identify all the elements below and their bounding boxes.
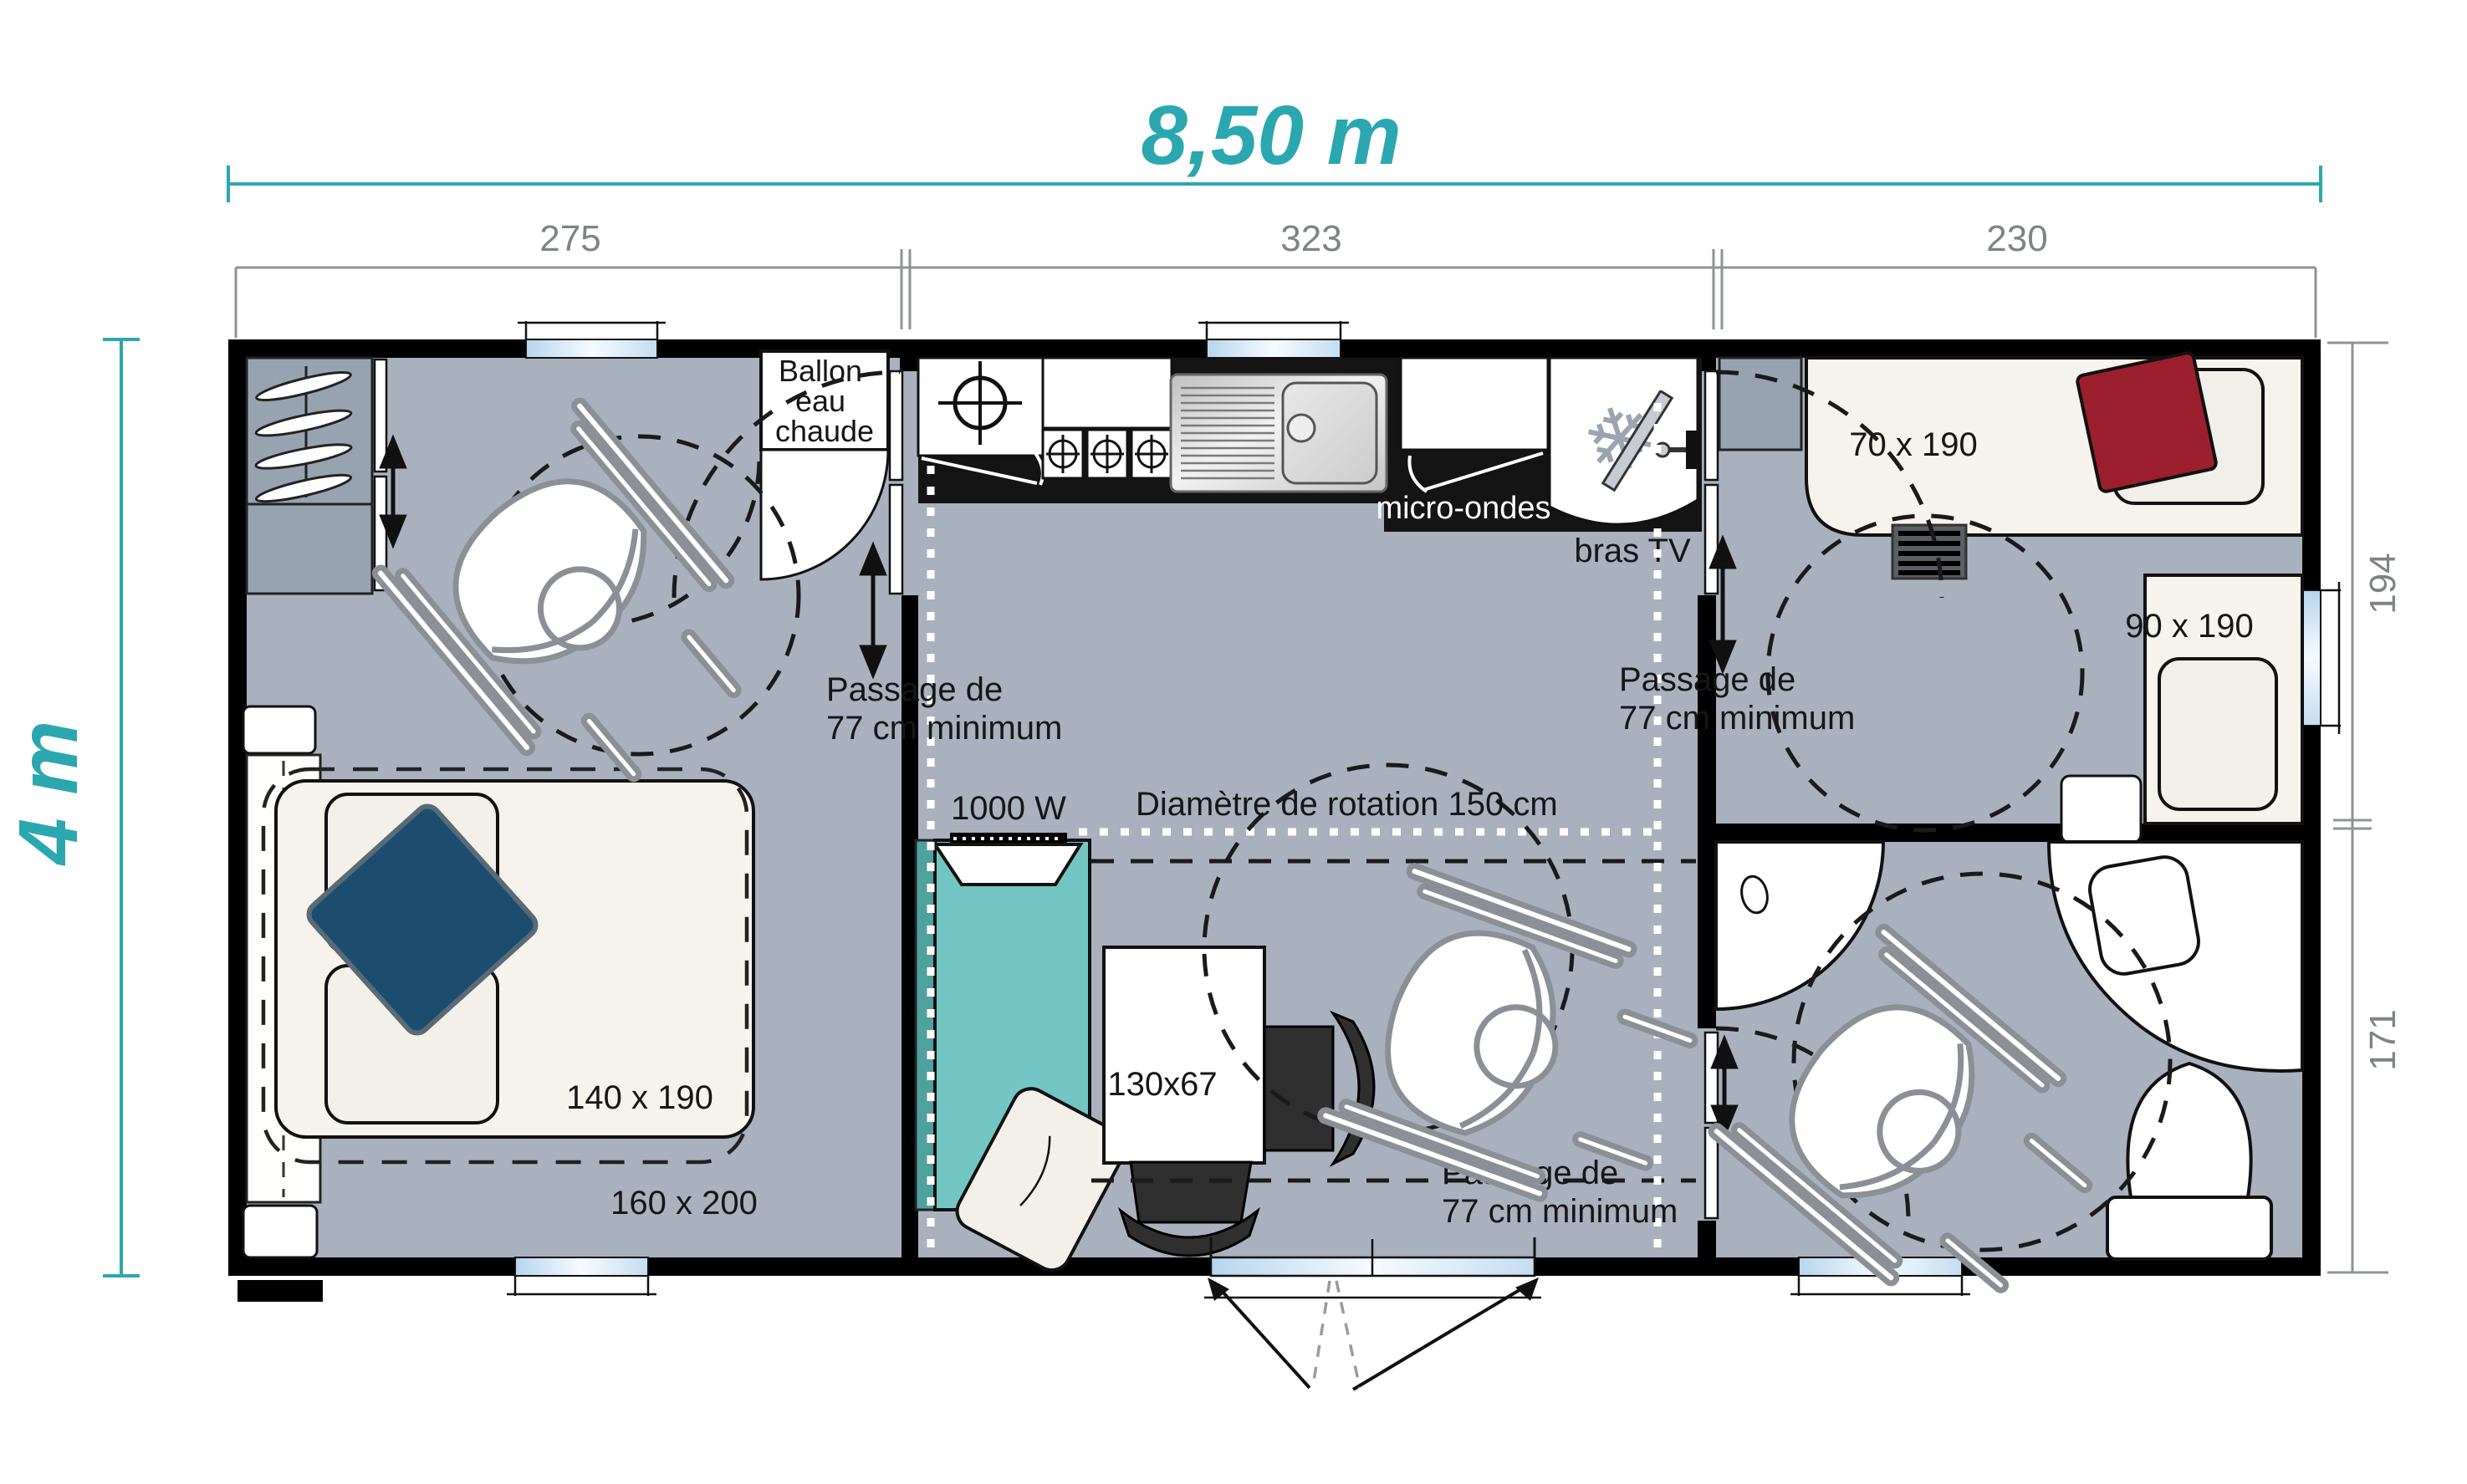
- nightstand: [2061, 776, 2141, 843]
- window-top-left: [526, 339, 657, 358]
- sliding-door-left-bedroom: [890, 371, 902, 480]
- dimension-right-segments: [2327, 343, 2388, 1272]
- segment-194-label: 194: [2362, 553, 2403, 614]
- segment-171-label: 171: [2362, 1009, 2403, 1070]
- dimension-height: [103, 339, 140, 1276]
- sliding-door-right-bedroom: [1705, 371, 1718, 480]
- pillow: [2159, 659, 2276, 809]
- segment-275-label: 275: [539, 218, 600, 259]
- bed-160-label: 160 x 200: [610, 1185, 758, 1221]
- bed-140-label: 140 x 190: [566, 1079, 713, 1116]
- heater-1000w-icon: [935, 833, 1080, 885]
- entry-step: [238, 1280, 323, 1302]
- bed-90-label: 90 x 190: [2125, 608, 2253, 645]
- height-dimension-label: 4 m: [2, 721, 95, 866]
- window-right-wall: [2302, 590, 2321, 726]
- floor-plan-page: 8,50 m 275 323 230 4 m 194 171: [0, 0, 2467, 1484]
- wardrobe-left: [247, 358, 386, 594]
- window-kitchen: [1207, 339, 1341, 358]
- microwave-label: micro-ondes: [1376, 491, 1550, 526]
- segment-323-label: 323: [1280, 218, 1341, 259]
- radiator-icon: [1892, 525, 1966, 579]
- sink-icon: [1171, 375, 1387, 492]
- stove-burners-icon: [1043, 358, 1172, 478]
- table-label: 130x67: [1107, 1066, 1217, 1103]
- cushion-red: [2076, 352, 2217, 492]
- fridge-icon: ❄: [1550, 358, 1698, 524]
- width-dimension-label: 8,50 m: [1141, 89, 1401, 182]
- entry-door: [1204, 1237, 1541, 1390]
- window-bottom-left: [515, 1257, 648, 1276]
- rotation-diameter-label: Diamètre de rotation 150 cm: [1136, 786, 1558, 823]
- heater-label: 1000 W: [951, 790, 1066, 827]
- tv-arm-label: bras TV: [1574, 533, 1691, 569]
- dimension-top-segments: [236, 249, 2316, 338]
- table: [1104, 947, 1264, 1163]
- segment-230-label: 230: [1986, 218, 2047, 259]
- floor-plan-svg: 8,50 m 275 323 230 4 m 194 171: [0, 0, 2467, 1484]
